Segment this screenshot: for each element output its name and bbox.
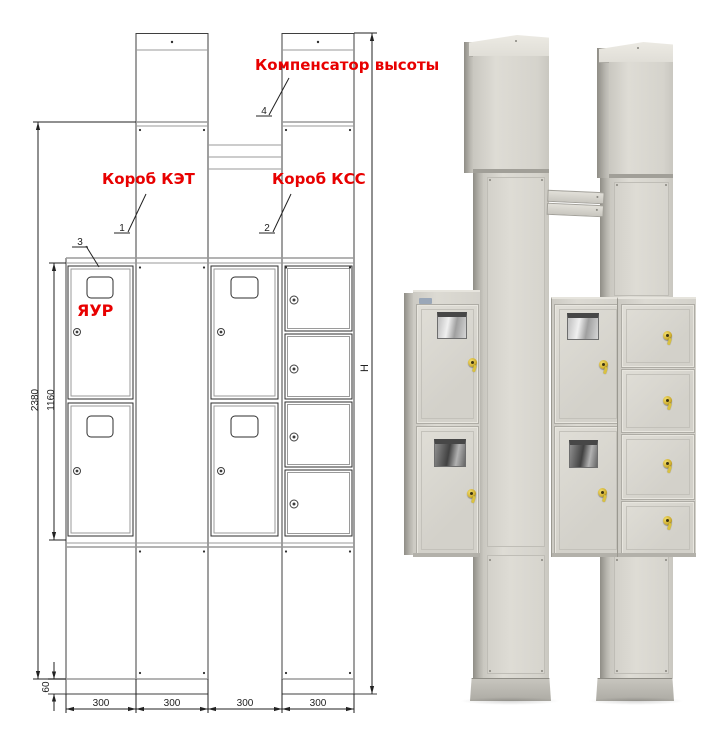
dim-overall-value: H xyxy=(359,364,371,372)
meter-window xyxy=(231,416,258,437)
panel-bottom-edge xyxy=(413,553,480,557)
dim-door-section-value: 1160 xyxy=(46,389,57,411)
meter-window xyxy=(231,277,258,298)
left-duct-side-face xyxy=(464,42,473,173)
dim-base-value: 60 xyxy=(41,681,52,693)
screw-icon xyxy=(616,559,618,561)
technical-drawing: 2380 1160 60 H 300 300 300 300 4 1 2 3 xyxy=(0,0,400,742)
screw-icon xyxy=(489,179,491,181)
left-duct-lower xyxy=(483,173,549,678)
lock-icon xyxy=(599,360,608,369)
screw-icon xyxy=(541,179,543,181)
screw-icon xyxy=(541,670,543,672)
door-groove xyxy=(626,309,690,363)
floor-shadow xyxy=(460,697,560,705)
lock-icon xyxy=(663,516,672,525)
screw-icon xyxy=(596,209,598,211)
meter-window xyxy=(87,277,113,298)
duct-leg-panel xyxy=(487,555,545,674)
dim-module-1: 300 xyxy=(93,698,110,709)
yaur-panel-side xyxy=(404,293,413,555)
meter-window xyxy=(434,439,466,467)
kss-duct-column xyxy=(282,33,354,694)
screw-icon xyxy=(515,40,517,42)
dim-module-2: 300 xyxy=(164,698,181,709)
meter-window xyxy=(567,313,599,340)
callout-1: 1 xyxy=(119,223,125,234)
dim-module-4: 300 xyxy=(310,698,327,709)
door-groove xyxy=(626,374,690,428)
label-compensator: Компенсатор высоты xyxy=(255,56,439,74)
dim-overall-height xyxy=(354,33,377,694)
small-door-column xyxy=(285,266,352,536)
screw-icon xyxy=(596,196,598,198)
left-duct-compensator xyxy=(473,56,549,169)
meter-window xyxy=(87,416,113,437)
right-duct-side-face xyxy=(597,48,609,178)
dim-module-3: 300 xyxy=(237,698,254,709)
duct-panel xyxy=(614,182,669,296)
lock-icon xyxy=(598,488,607,497)
product-photo xyxy=(400,0,706,742)
screw-icon xyxy=(489,559,491,561)
meter-window xyxy=(569,440,598,468)
panel-bottom-edge xyxy=(618,553,696,557)
door-groove xyxy=(626,506,690,550)
screw-icon xyxy=(489,670,491,672)
small-door-3 xyxy=(621,434,695,500)
callout-3: 3 xyxy=(77,237,83,248)
small-door-4 xyxy=(621,501,695,555)
middle-door-column xyxy=(211,266,278,536)
panel-bottom-edge xyxy=(552,553,623,557)
screw-icon xyxy=(541,559,543,561)
lock-icon xyxy=(468,358,477,367)
duct-panel xyxy=(487,177,545,547)
callout-4: 4 xyxy=(261,106,267,117)
callout-2: 2 xyxy=(264,223,270,234)
small-door-panel xyxy=(617,297,696,557)
lock-icon xyxy=(663,396,672,405)
yaur-door-bottom xyxy=(416,426,479,555)
label-korob-ket: Короб КЭТ xyxy=(102,170,195,188)
small-door-2 xyxy=(621,369,695,433)
ket-duct-column xyxy=(136,33,208,679)
middle-door-panel xyxy=(551,297,623,557)
duct-bridge xyxy=(546,190,604,222)
screw-icon xyxy=(616,670,618,672)
door-groove xyxy=(626,439,690,495)
screw-icon xyxy=(616,184,618,186)
small-door-1 xyxy=(621,304,695,368)
right-duct-compensator xyxy=(609,62,673,174)
screw-dots xyxy=(139,41,351,674)
left-duct-top-cap xyxy=(469,35,549,57)
yaur-door-top xyxy=(416,304,479,424)
label-korob-kss: Короб КСС xyxy=(272,170,366,188)
dim-base-height xyxy=(52,662,56,711)
cabinet-outline xyxy=(48,258,377,694)
screw-icon xyxy=(665,670,667,672)
meter-window xyxy=(437,312,467,339)
middle-door-top xyxy=(554,304,622,424)
dim-total-height-value: 2380 xyxy=(30,388,41,411)
floor-shadow xyxy=(588,697,684,705)
middle-door-bottom xyxy=(554,426,622,555)
lock-icon xyxy=(467,489,476,498)
yaur-panel xyxy=(413,290,480,557)
duct-bridge xyxy=(208,145,282,169)
screw-icon xyxy=(665,559,667,561)
lock-icon xyxy=(663,331,672,340)
right-duct-top-cap xyxy=(599,42,673,63)
duct-leg-panel xyxy=(614,555,669,674)
lock-icon xyxy=(663,459,672,468)
screw-icon xyxy=(637,47,639,49)
screw-icon xyxy=(665,184,667,186)
screenshot-canvas: 2380 1160 60 H 300 300 300 300 4 1 2 3 К… xyxy=(0,0,706,742)
label-yaur: ЯУР xyxy=(77,301,113,320)
